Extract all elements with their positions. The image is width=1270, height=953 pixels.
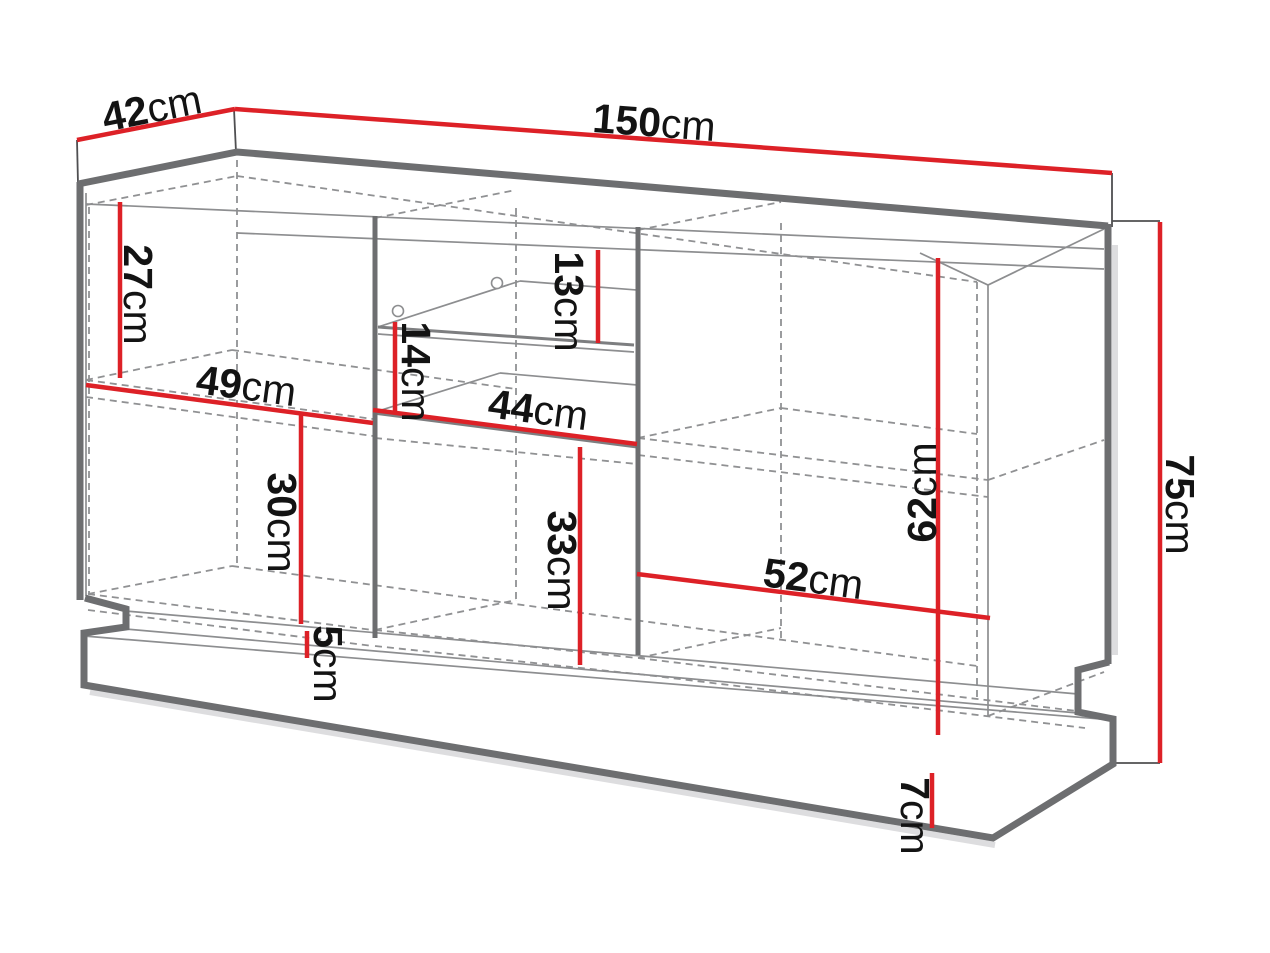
sideboard-technical-drawing: 42 cm 150 cm 27 cm 49 cm 30 cm 14 cm 13 … <box>0 0 1270 953</box>
dim-label-62: 62 cm <box>899 442 945 542</box>
dim-label-49: 49 cm <box>194 356 299 415</box>
hidden-right-shelf-wall-receding <box>988 440 1104 480</box>
hidden-ceiling-mid-receding <box>375 190 516 218</box>
furniture-dimension-diagram: 42 cm 150 cm 27 cm 49 cm 30 cm 14 cm 13 … <box>0 0 1270 953</box>
hidden-ceiling-right-receding <box>638 202 781 230</box>
hidden-lines <box>86 160 1104 728</box>
plinth-top-edge <box>126 611 1078 694</box>
shelf-pin-icon <box>492 278 503 289</box>
svg-text:cm: cm <box>393 367 439 422</box>
svg-text:cm: cm <box>899 442 945 497</box>
hidden-floor-left-receding <box>88 566 232 594</box>
svg-text:5: 5 <box>305 625 351 648</box>
svg-text:62: 62 <box>899 497 945 543</box>
svg-text:cm: cm <box>259 518 305 573</box>
hidden-ceiling-back-edge <box>237 176 977 282</box>
svg-text:14: 14 <box>393 321 439 367</box>
svg-text:44: 44 <box>486 380 537 432</box>
svg-text:cm: cm <box>539 556 585 611</box>
svg-text:13: 13 <box>546 251 592 297</box>
dim-label-75: 75 cm <box>1157 454 1203 554</box>
top-slab-left-front-vertical <box>77 140 78 184</box>
svg-text:30: 30 <box>259 472 305 518</box>
svg-text:cm: cm <box>659 100 717 150</box>
svg-text:52: 52 <box>761 549 812 601</box>
shadow-bottom-edge <box>90 692 995 845</box>
hidden-floor-mid-receding <box>375 600 516 630</box>
carcass-outline <box>78 152 1113 838</box>
svg-text:cm: cm <box>531 386 591 439</box>
base-top-edge <box>84 636 1113 720</box>
hidden-floor-right-front2 <box>638 674 1085 728</box>
dimension-labels: 42 cm 150 cm 27 cm 49 cm 30 cm 14 cm 13 … <box>98 76 1203 855</box>
hidden-right-shelf-receding <box>638 408 781 438</box>
svg-text:cm: cm <box>1157 500 1203 555</box>
dim-label-14: 14 cm <box>393 321 439 421</box>
dim-label-width-150: 150 cm <box>591 95 717 150</box>
hidden-floor-right-receding <box>638 628 781 658</box>
svg-text:cm: cm <box>143 76 206 132</box>
dim-label-depth-42: 42 cm <box>98 76 205 141</box>
shelf-pin-icon <box>393 306 404 317</box>
svg-text:cm: cm <box>892 800 938 855</box>
dim-label-5: 5 cm <box>305 625 351 702</box>
plinth-bottom-edge <box>126 629 1078 713</box>
shelf-pins <box>393 278 503 317</box>
svg-text:cm: cm <box>115 290 161 345</box>
shadow-lines <box>90 245 1115 845</box>
svg-text:75: 75 <box>1157 454 1203 500</box>
tick-lines <box>77 109 1160 763</box>
hidden-right-shelf-back <box>781 408 977 434</box>
dim-label-30: 30 cm <box>259 472 305 572</box>
svg-text:49: 49 <box>194 356 245 408</box>
dim-label-52: 52 cm <box>761 549 866 608</box>
dim-label-7: 7 cm <box>892 777 938 854</box>
svg-text:cm: cm <box>546 297 592 352</box>
svg-text:150: 150 <box>591 95 663 146</box>
right-wall-inner-top-corner <box>920 229 1104 285</box>
top-slab-back-left-vertical <box>234 109 236 152</box>
svg-text:cm: cm <box>305 648 351 703</box>
dim-label-27: 27 cm <box>115 244 161 344</box>
svg-text:33: 33 <box>539 510 585 556</box>
hidden-floor-right-front <box>638 658 1085 712</box>
dim-label-13: 13 cm <box>546 251 592 351</box>
svg-text:cm: cm <box>239 362 299 415</box>
svg-text:27: 27 <box>115 244 161 290</box>
svg-text:7: 7 <box>892 777 938 800</box>
dim-label-33: 33 cm <box>539 510 585 610</box>
svg-text:cm: cm <box>806 555 866 608</box>
